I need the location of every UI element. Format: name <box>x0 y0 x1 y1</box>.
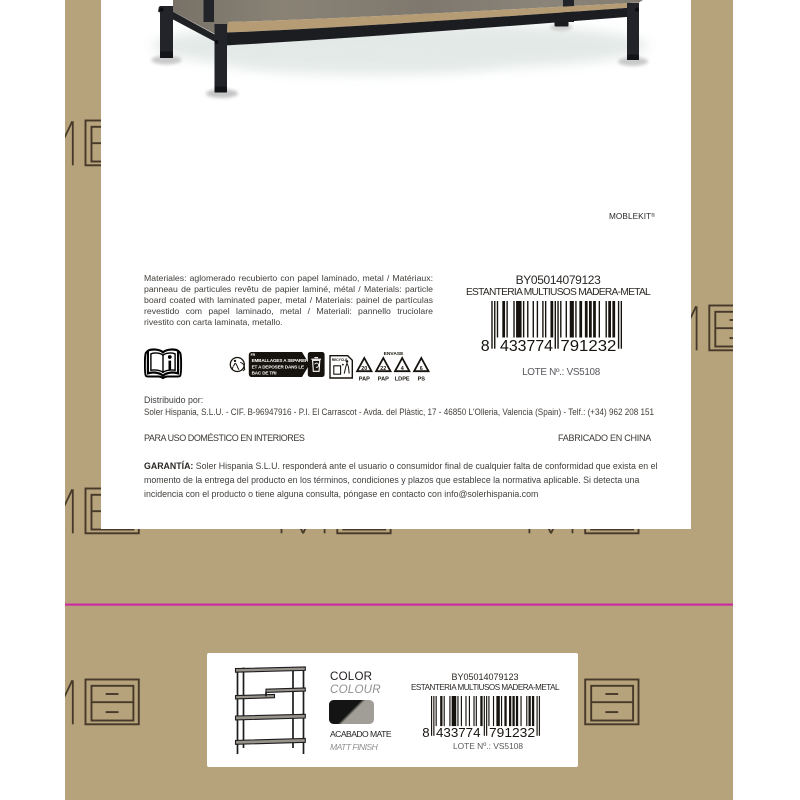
svg-text:FR: FR <box>251 353 256 357</box>
svg-text:PAP: PAP <box>378 376 389 382</box>
svg-text:BAC DE TRI: BAC DE TRI <box>252 371 277 376</box>
svg-text:ET A DEPOSER DANS LE: ET A DEPOSER DANS LE <box>252 364 304 369</box>
svg-text:8: 8 <box>422 725 429 738</box>
svg-text:791232: 791232 <box>560 338 616 353</box>
svg-text:EMBALLAGES A SEPARER: EMBALLAGES A SEPARER <box>252 358 309 363</box>
svg-text:PAP: PAP <box>359 376 370 382</box>
svg-text:433774: 433774 <box>436 725 481 738</box>
svg-text:LDPE: LDPE <box>395 376 410 382</box>
svg-text:ENVASE: ENVASE <box>384 351 404 357</box>
svg-text:22: 22 <box>380 366 386 372</box>
svg-text:6: 6 <box>420 366 423 372</box>
svg-text:4: 4 <box>401 366 404 372</box>
svg-text:PS: PS <box>418 376 426 382</box>
svg-text:791232: 791232 <box>489 725 535 738</box>
svg-text:20: 20 <box>361 366 367 372</box>
